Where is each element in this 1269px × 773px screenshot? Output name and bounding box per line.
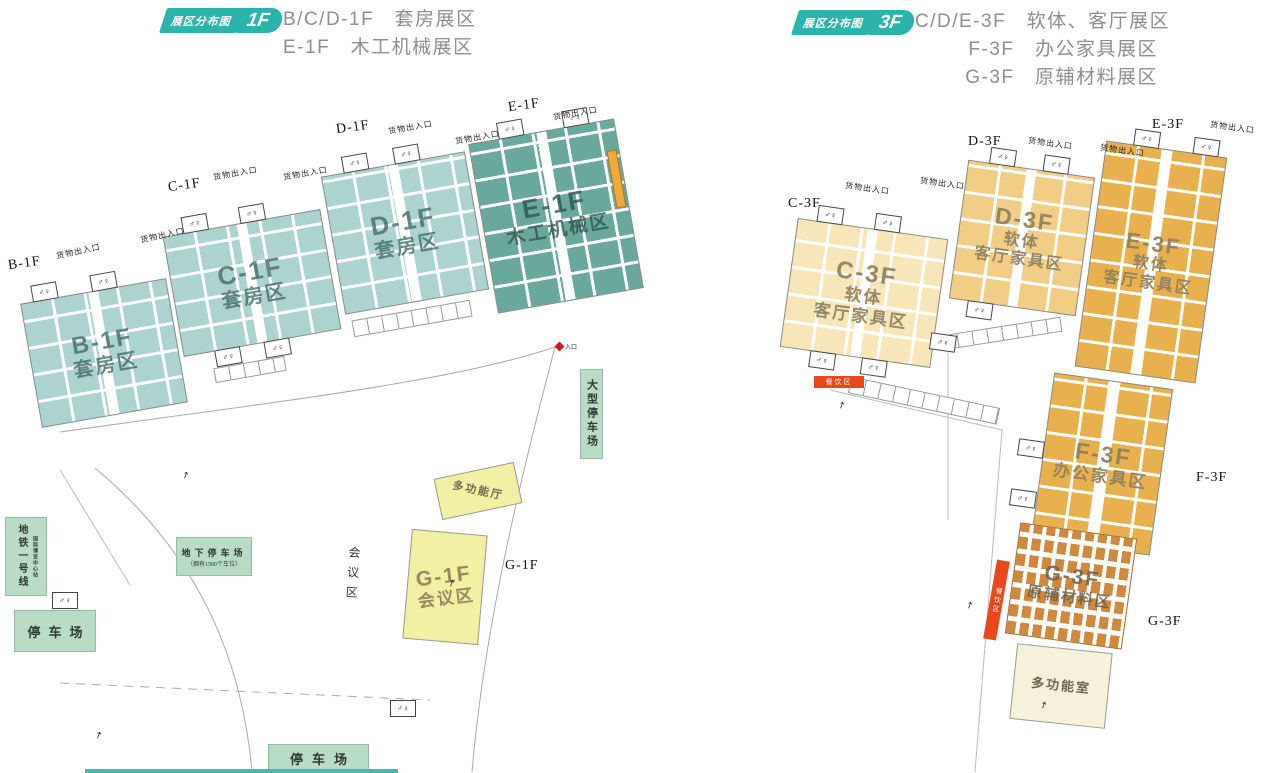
legend-1f-line-1: B/C/D-1F 套房展区 — [283, 6, 477, 34]
hall-d1f-label: D-1F 套房区 — [322, 153, 488, 314]
hall-c1f-label: C-1F 套房区 — [164, 210, 340, 356]
dining-bar-horizontal: 餐饮区 — [814, 376, 864, 388]
cargo-label: 货物出入口 — [919, 175, 965, 192]
outside-label-d3f: D-3F — [968, 134, 1002, 150]
hall-g3f-label: G-3F 原辅材料区 — [1006, 523, 1136, 648]
legend-1f-line-2: E-1F 木工机械展区 — [283, 34, 477, 62]
badge-title-1f: 展区分布图 — [159, 8, 245, 33]
restroom-glyph: ♂♀ — [997, 152, 1010, 162]
restroom-glyph: ♂♀ — [59, 597, 71, 605]
annex-strip — [848, 376, 1000, 424]
hall-c3f-label: C-3F 软体 客厅家具区 — [781, 219, 947, 367]
outside-label-d1f: D-1F — [335, 118, 370, 139]
floor-badge-3f: 展区分布图 3F — [795, 10, 914, 35]
escalator-icon: ↗ — [180, 469, 191, 482]
outside-label-b1f: B-1F — [7, 254, 42, 274]
metro-line-label: 地铁一号线 — [14, 524, 29, 589]
large-parking-label: 大型停车场 — [584, 379, 600, 449]
legend-1f: B/C/D-1F 套房展区 E-1F 木工机械展区 — [283, 6, 477, 62]
hall-d3f-label: D-3F 软体 客厅家具区 — [950, 161, 1094, 315]
parking-west-box: 停车场 — [14, 610, 96, 652]
cargo-label: 货物出入口 — [844, 180, 890, 197]
hall-e3f: ♂♀ ♂♀ E-3F 软体 客厅家具区 — [1075, 141, 1228, 384]
restroom-glyph: ♂♀ — [188, 219, 201, 229]
hall-e1f: ♂♀ ♂♀ E-1F 木工机械区 — [468, 118, 644, 313]
multi-function-hall: 多功能厅 — [434, 462, 523, 520]
entrance-label: 入口 — [565, 342, 577, 351]
restroom-glyph: ♂♀ — [222, 352, 235, 362]
badge-title-3f: 展区分布图 — [791, 10, 877, 35]
hall-c1f: ♂♀ ♂♀ ♂♀ ♂♀ C-1F 套房区 — [163, 209, 342, 357]
escalator-icon: ↗ — [93, 729, 104, 742]
parking-south-box: 停车场 — [268, 744, 369, 772]
metro-line-box: 地铁一号线 国际博览中心站 — [5, 517, 47, 596]
outside-label-e3f: E-3F — [1152, 117, 1184, 133]
hall-g1f-label: G-1F 会议区 — [402, 529, 489, 645]
restroom-glyph: ♂♀ — [97, 277, 110, 287]
entrance-diamond-icon — [555, 342, 565, 352]
restroom-glyph: ♂♀ — [349, 158, 362, 168]
metro-station-label: 国际博览中心站 — [31, 536, 38, 578]
restroom-glyph: ♂♀ — [1017, 494, 1030, 504]
restroom-glyph: ♂♀ — [824, 210, 837, 220]
cargo-label: 货物出入口 — [212, 164, 258, 183]
outside-label-c3f: C-3F — [788, 196, 821, 212]
restroom-glyph: ♂♀ — [881, 218, 894, 228]
hall-g3f: G-3F 原辅材料区 — [1005, 522, 1137, 649]
outside-label-e1f: E-1F — [507, 96, 541, 116]
restroom-icon: ♂♀ — [52, 592, 78, 609]
multi-function-room: 多功能室 — [1009, 643, 1112, 729]
underground-parking-capacity: （拥有1500个车位） — [187, 559, 241, 568]
hall-g3f-name: 原辅材料区 — [1026, 583, 1113, 612]
hall-g1f: G-1F 会议区 — [402, 529, 487, 645]
cargo-label: 货物出入口 — [55, 241, 101, 261]
escalator-icon: ↗ — [964, 599, 975, 612]
cargo-label: 货物出入口 — [1209, 119, 1255, 136]
hall-c3f-code: C-3F — [834, 256, 899, 292]
legend-3f: C/D/E-3F 软体、客厅展区 F-3F 办公家具展区 G-3F 原辅材料展区 — [915, 8, 1158, 92]
restroom-glyph: ♂♀ — [271, 343, 284, 353]
escalator-icon: ↗ — [836, 399, 847, 412]
outside-label-g1f: G-1F — [505, 558, 539, 574]
large-parking-box: 大型停车场 — [580, 369, 603, 459]
underground-parking-box: 地下停车场 （拥有1500个车位） — [176, 537, 252, 576]
cargo-label: 货物出入口 — [1027, 135, 1073, 152]
restroom-glyph: ♂♀ — [816, 356, 829, 366]
restroom-icon: ♂♀ — [1009, 488, 1037, 508]
metro-line-strip — [85, 769, 398, 773]
restroom-icon: ♂♀ — [1017, 438, 1045, 458]
multi-function-room-label: 多功能室 — [1010, 644, 1111, 727]
outside-label-f3f: F-3F — [1196, 470, 1227, 486]
outside-label-g3f: G-3F — [1148, 614, 1182, 630]
restroom-glyph: ♂♀ — [1200, 142, 1213, 152]
restroom-glyph: ♂♀ — [973, 305, 986, 315]
restroom-glyph: ♂♀ — [1050, 160, 1063, 170]
restroom-glyph: ♂♀ — [245, 208, 258, 218]
legend-3f-line-3: G-3F 原辅材料展区 — [915, 64, 1158, 92]
floorplan-canvas: 展区分布图 1F B/C/D-1F 套房展区 E-1F 木工机械展区 展区分布图… — [0, 0, 1269, 773]
restroom-glyph: ♂♀ — [397, 705, 409, 713]
badge-floor-3f: 3F — [868, 10, 917, 35]
hall-d3f: ♂♀ ♂♀ ♂♀ D-3F 软体 客厅家具区 — [949, 160, 1095, 316]
hall-e3f-label: E-3F 软体 客厅家具区 — [1076, 142, 1226, 383]
meeting-area-vertical-label: 会议区 — [342, 545, 364, 618]
restroom-glyph: ♂♀ — [1025, 444, 1038, 454]
hall-e1f-label: E-1F 木工机械区 — [469, 120, 642, 313]
restroom-icon: ♂♀ — [929, 332, 957, 352]
legend-3f-line-2: F-3F 办公家具展区 — [915, 36, 1158, 64]
legend-3f-line-1: C/D/E-3F 软体、客厅展区 — [915, 8, 1158, 36]
cargo-label: 货物出入口 — [387, 118, 433, 137]
restroom-icon: ♂♀ — [390, 700, 416, 717]
outside-label-c1f: C-1F — [167, 176, 202, 196]
underground-parking-title: 地下停车场 — [181, 546, 246, 559]
multi-function-hall-label: 多功能厅 — [435, 463, 522, 519]
annex-strip — [942, 317, 1063, 351]
restroom-glyph: ♂♀ — [1141, 134, 1154, 144]
hall-d3f-code: D-3F — [993, 203, 1055, 237]
floor-badge-1f: 展区分布图 1F — [163, 8, 282, 33]
restroom-glyph: ♂♀ — [504, 124, 517, 134]
hall-b1f-label: B-1F 套房区 — [21, 279, 186, 426]
restroom-glyph: ♂♀ — [937, 338, 950, 348]
badge-floor-1f: 1F — [236, 8, 285, 33]
hall-c3f: ♂♀ ♂♀ ♂♀ ♂♀ C-3F 软体 客厅家具区 — [780, 218, 949, 368]
entrance-marker: 入口 — [556, 342, 577, 351]
hall-b1f: ♂♀ ♂♀ B-1F 套房区 — [20, 278, 188, 428]
restroom-glyph: ♂♀ — [867, 363, 880, 373]
restroom-glyph: ♂♀ — [400, 149, 413, 159]
hall-d1f: ♂♀ ♂♀ D-1F 套房区 — [321, 151, 489, 314]
dining-bar-vertical-label: 餐饮区 — [989, 586, 1004, 614]
restroom-glyph: ♂♀ — [38, 287, 51, 297]
